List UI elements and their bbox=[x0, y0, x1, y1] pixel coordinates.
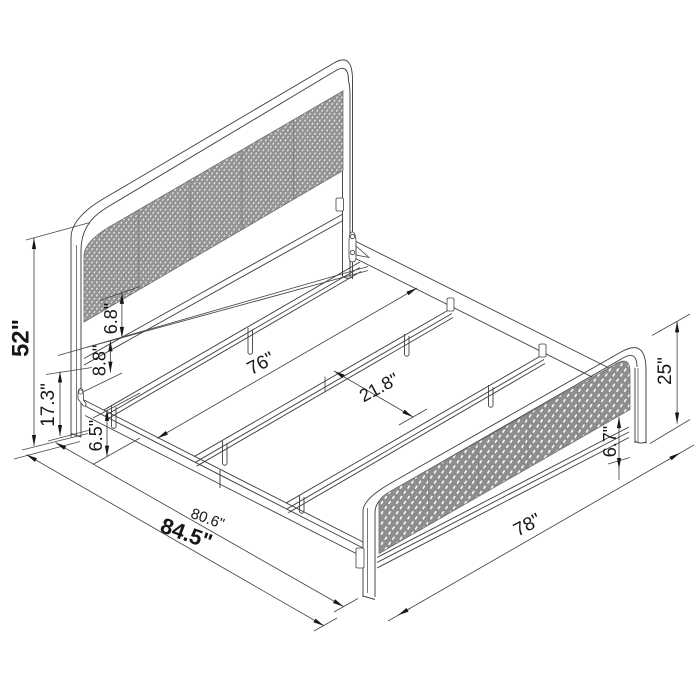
svg-text:25": 25" bbox=[655, 357, 676, 385]
svg-text:17.3": 17.3" bbox=[38, 383, 59, 427]
svg-text:78": 78" bbox=[510, 510, 544, 542]
svg-text:76": 76" bbox=[244, 348, 278, 380]
svg-text:52": 52" bbox=[8, 319, 35, 357]
svg-text:6.8": 6.8" bbox=[101, 303, 121, 334]
svg-text:21.8": 21.8" bbox=[356, 369, 402, 406]
svg-text:6.7": 6.7" bbox=[600, 426, 620, 457]
svg-text:6.5": 6.5" bbox=[86, 420, 106, 451]
svg-text:8.8": 8.8" bbox=[89, 345, 109, 376]
